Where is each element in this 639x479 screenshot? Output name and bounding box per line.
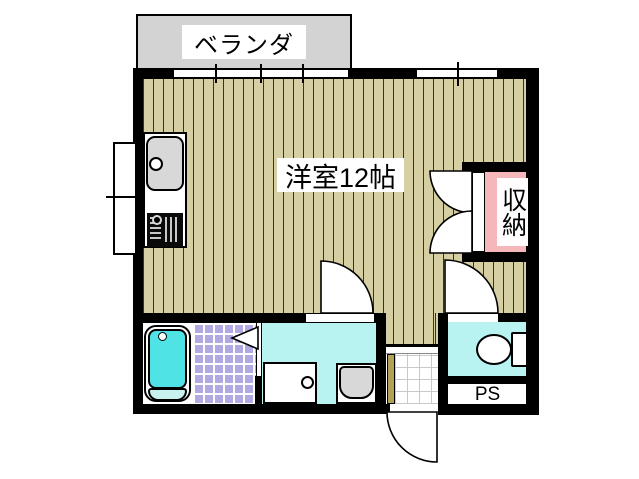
entrance-opening: [390, 404, 438, 414]
upper-right-window: [415, 68, 499, 79]
genkan-step: [386, 344, 438, 354]
balcony-label: ベランダ: [182, 25, 306, 59]
pipe-space-label: PS: [448, 384, 527, 405]
wall-hall-left: [376, 313, 386, 405]
bathtub-drain: [158, 332, 167, 341]
pipe-space: PS: [448, 384, 527, 405]
genkan-side-strip: [387, 354, 395, 404]
main-room-label: 洋室12帖: [277, 158, 404, 192]
entrance-door: [387, 412, 437, 462]
washbasin: [339, 366, 374, 399]
bathroom-tile-floor: [193, 323, 256, 405]
window-mullion-tick: [302, 64, 304, 83]
floor-plan: ベランダ PS: [0, 0, 639, 479]
stove-icon: [147, 213, 183, 247]
stove-grate-right: [165, 217, 179, 242]
storage-label: 収納: [497, 178, 528, 246]
laundry-pan-drain: [301, 376, 314, 389]
hallway-floor: [386, 313, 438, 346]
window-mullion-tick: [457, 62, 459, 86]
storage-door-frame: [472, 172, 485, 252]
faucet-icon: [149, 157, 163, 171]
toilet-bowl: [476, 334, 512, 365]
bathtub-apron: [148, 388, 187, 401]
window-mullion-tick: [215, 64, 217, 83]
genkan-tile-floor: [395, 354, 438, 404]
door-opening-toilet: [448, 314, 498, 322]
balcony-window: [172, 68, 350, 79]
bathtub-basin: [148, 329, 187, 389]
door-opening-washroom: [306, 314, 374, 322]
window-mullion-tick: [106, 196, 136, 198]
stove-burner: [152, 215, 162, 225]
wall-bottom: [133, 404, 539, 414]
window-mullion-tick: [260, 64, 262, 83]
left-wall-window: [113, 142, 137, 255]
